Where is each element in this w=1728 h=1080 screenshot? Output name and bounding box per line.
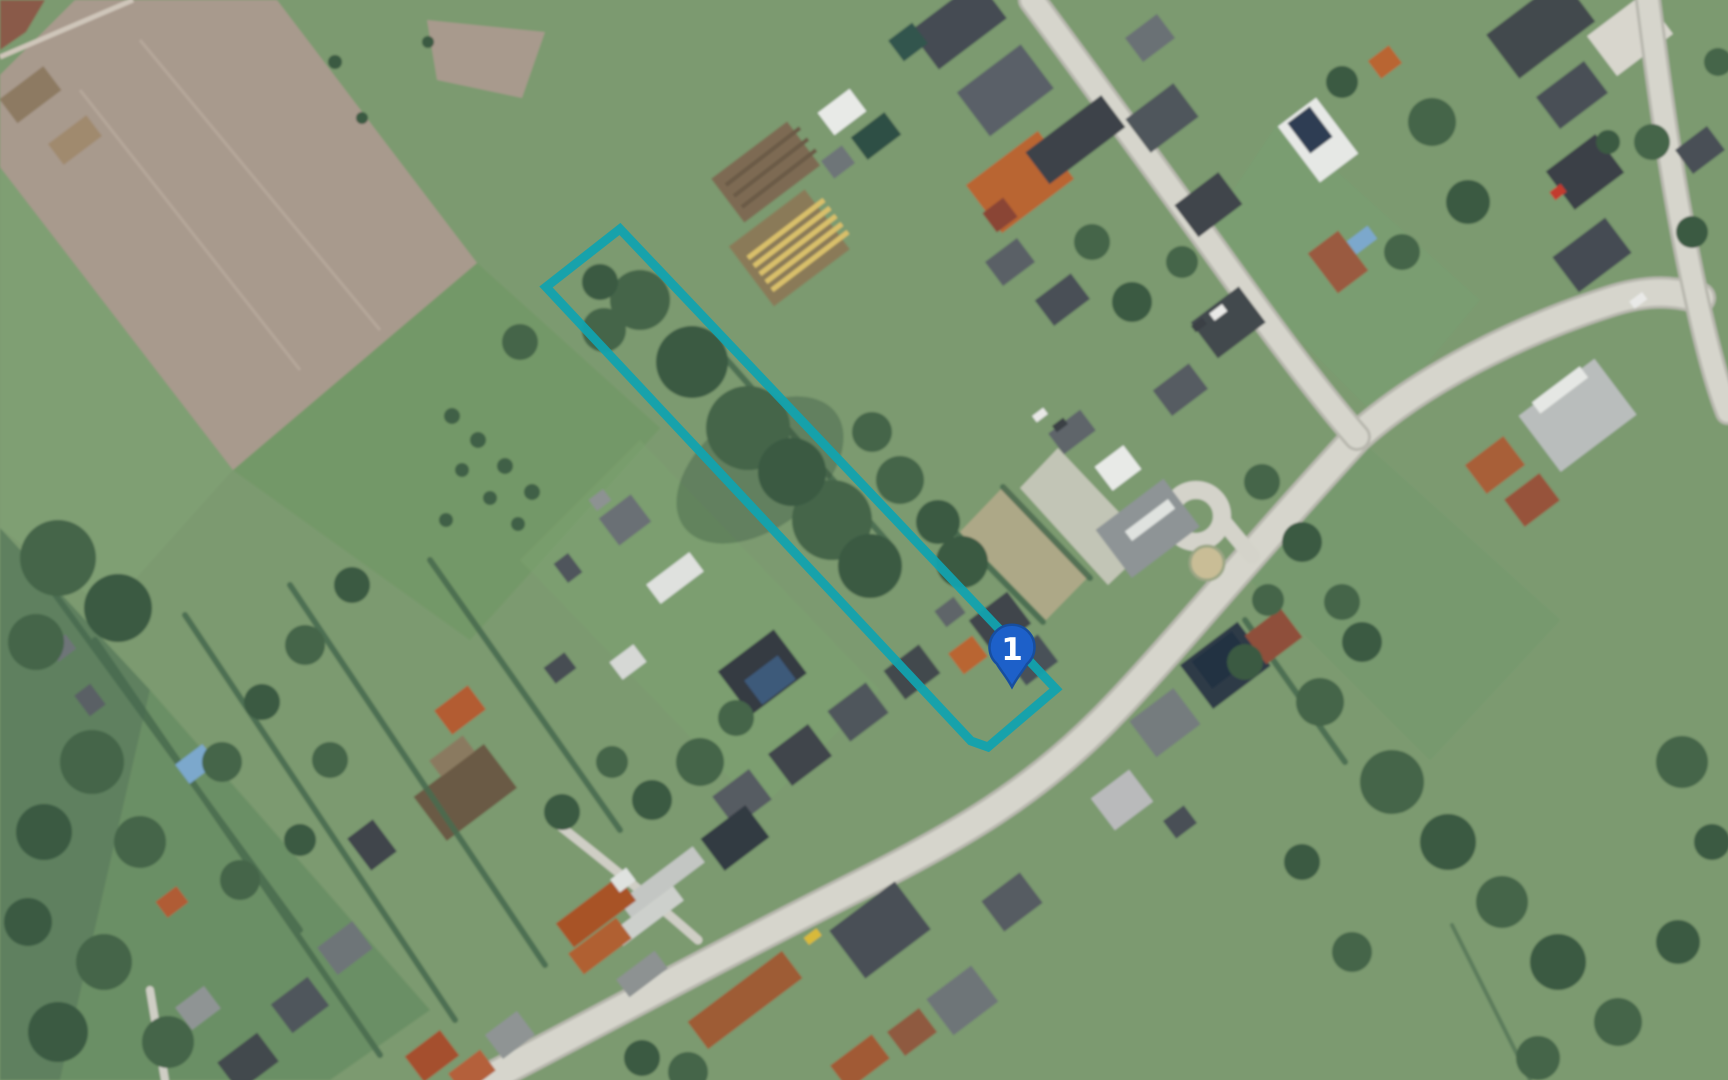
map-viewport[interactable]: 1: [0, 0, 1728, 1080]
aerial-imagery: 1: [0, 0, 1728, 1080]
map-marker-label: 1: [1001, 632, 1023, 668]
ornamental-garden-circle: [1190, 546, 1224, 580]
satellite-photo-layer: [0, 0, 1728, 1080]
